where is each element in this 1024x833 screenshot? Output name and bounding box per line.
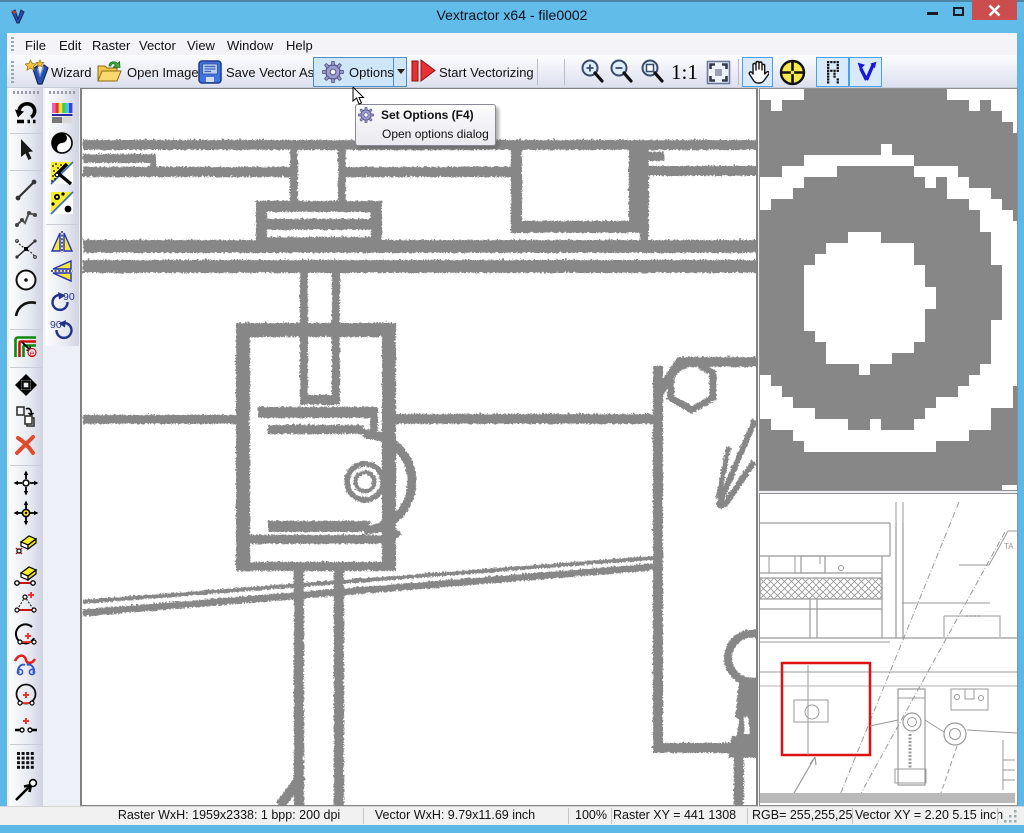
svg-text:90: 90: [63, 291, 75, 303]
svg-text:90: 90: [50, 319, 62, 331]
svg-text:e: e: [30, 349, 35, 358]
svg-text:TA: TA: [1004, 542, 1014, 551]
